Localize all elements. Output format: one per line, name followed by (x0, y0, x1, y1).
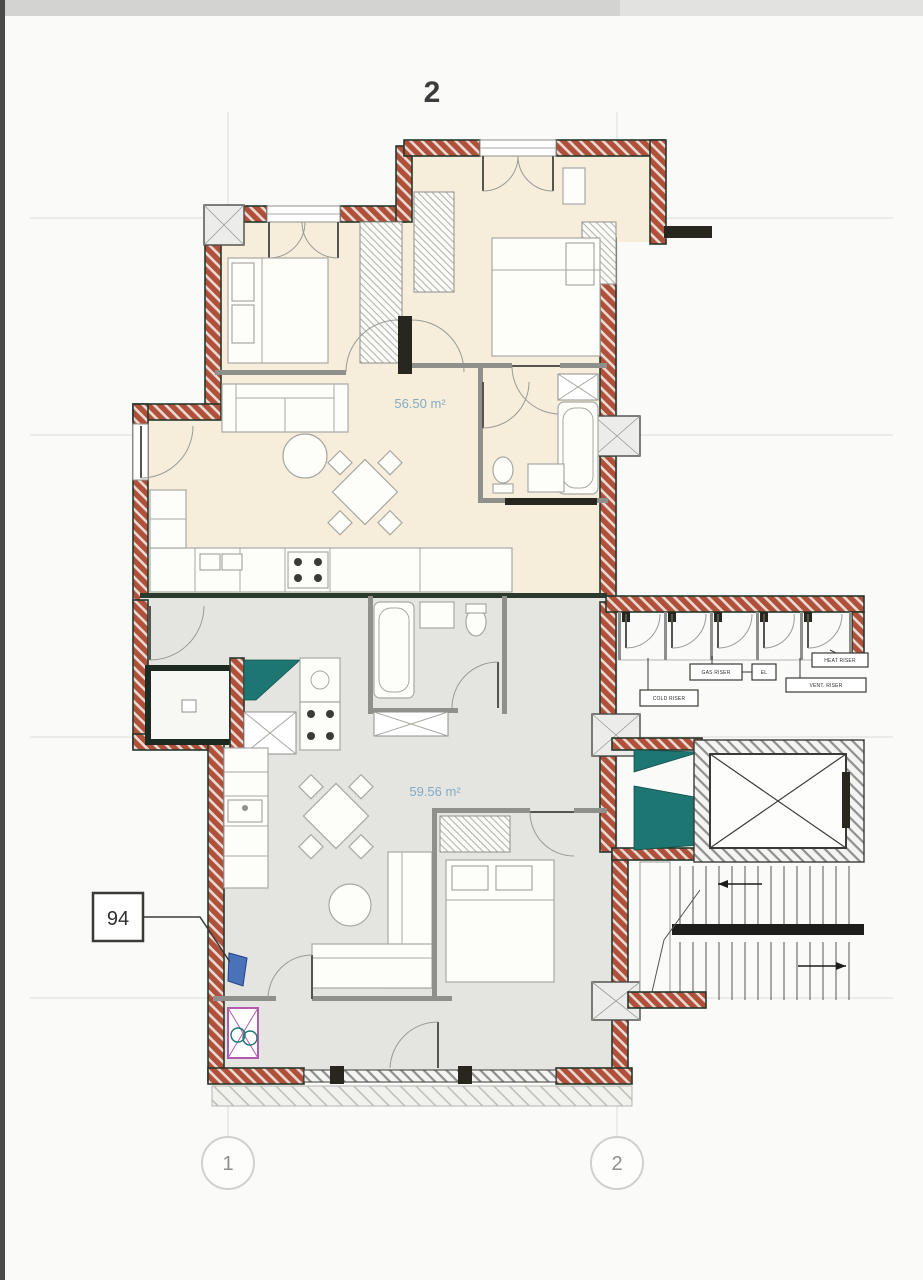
stair-arrow-down (836, 962, 846, 970)
round-table-upper (283, 434, 327, 478)
utility-corridor: COLD RISER GAS RISER EL HEAT RISER VENT.… (606, 596, 868, 706)
stove-lower (300, 702, 340, 750)
coffee-table-lower (329, 884, 371, 926)
stove-upper (288, 552, 328, 588)
laundry-shaft-purple (228, 1008, 258, 1058)
balcony (212, 1086, 632, 1106)
unit-number-label: 94 (107, 908, 129, 930)
entry-marker-blue (228, 953, 247, 986)
upper-apartment: 56.50 m² (133, 140, 712, 656)
stair-landing-bar (672, 924, 864, 935)
dining-table-upper (328, 451, 402, 535)
sink-lower (420, 602, 454, 628)
apartment-separator-wall (140, 593, 607, 598)
elevator (612, 738, 864, 862)
axis-bubble-2-label: 2 (611, 1153, 622, 1175)
utility-label-3: EL (761, 670, 768, 676)
bed-bedroom1 (228, 258, 328, 363)
utility-label-1: COLD RISER (653, 696, 686, 702)
dining-table-lower (299, 775, 373, 859)
axis-bubble-1-label: 1 (222, 1153, 233, 1175)
cabinet-bedroom2 (563, 168, 585, 204)
utility-callouts: COLD RISER GAS RISER EL HEAT RISER VENT.… (640, 650, 868, 706)
bath-dark-bar (505, 498, 597, 505)
staircase (628, 862, 864, 1008)
wardrobe-bedroom2 (414, 192, 454, 292)
terrace-ledge (664, 226, 712, 238)
top-axis-label: 2 (424, 76, 441, 109)
column-right-1 (594, 416, 640, 456)
teal-duct-2 (634, 786, 700, 850)
utility-label-2: GAS RISER (701, 670, 730, 676)
upper-area-label: 56.50 m² (394, 396, 446, 411)
toilet-upper (493, 457, 513, 483)
top-band-light (620, 0, 923, 16)
utility-label-5: VENT. RISER (809, 683, 842, 689)
sofa-upper (222, 384, 348, 432)
sink-upper (528, 464, 564, 492)
utility-label-4: HEAT RISER (824, 658, 856, 664)
floor-plan-page: 2 1 2 (0, 0, 923, 1280)
column-top-left (204, 205, 244, 245)
teal-duct-1 (634, 750, 700, 772)
elevator-door (842, 772, 850, 828)
lower-apartment: 94 59.56 m² (93, 596, 640, 1106)
kitchen-sink (200, 554, 220, 570)
lower-area-label: 59.56 m² (409, 784, 461, 799)
left-edge (0, 0, 5, 1280)
bed-bedroom2 (492, 238, 600, 356)
wardrobe-bedroom1 (360, 222, 402, 363)
floor-plan-drawing: 2 1 2 (0, 0, 923, 1280)
wardrobe-lower (440, 816, 510, 852)
storage-room (148, 668, 232, 742)
